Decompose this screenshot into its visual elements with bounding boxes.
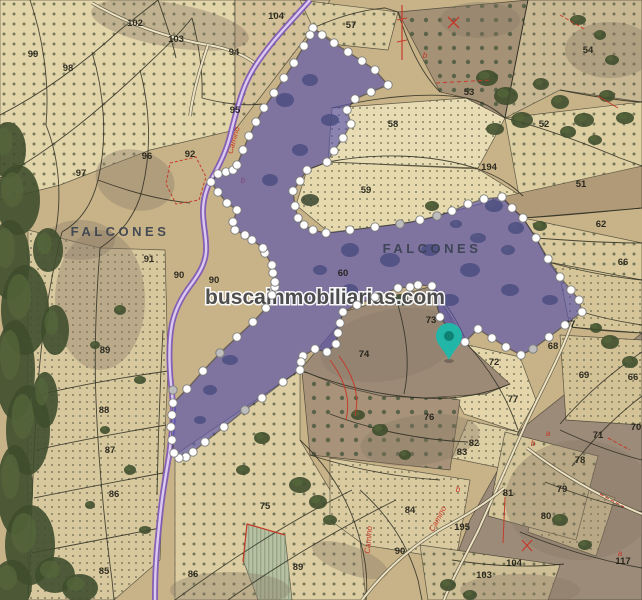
parcel-vertex-dot[interactable] <box>322 229 330 237</box>
tree-scrub-highlight <box>2 172 24 207</box>
parcel-vertex-dot[interactable] <box>339 308 347 316</box>
parcel-vertex-dot[interactable] <box>223 199 231 207</box>
tree-scrub-highlight <box>601 91 609 97</box>
tree-scrub-highlight <box>514 114 525 122</box>
parcel-number: 75 <box>260 501 271 512</box>
parcel-vertex-dot[interactable] <box>428 282 436 290</box>
bare-soil-patch <box>440 2 520 38</box>
tree-scrub-highlight <box>141 527 147 531</box>
parcel-number: 60 <box>338 268 349 279</box>
parcel-vertex-dot[interactable] <box>323 158 331 166</box>
tree-scrub-highlight <box>91 342 96 346</box>
tree-scrub-highlight <box>116 306 122 311</box>
camino-label: b <box>531 439 536 448</box>
parcel-vertex-dot[interactable] <box>508 204 516 212</box>
parcel-vertex-dot[interactable] <box>207 178 215 186</box>
parcel-number: 78 <box>575 455 586 466</box>
tree-scrub-highlight <box>11 513 36 553</box>
parcel-vertex-dot[interactable] <box>371 223 379 231</box>
parcel-number: 66 <box>628 372 639 383</box>
parcel-vertex-dot[interactable] <box>199 367 207 375</box>
place-label-falcones: FALCONES <box>383 241 482 256</box>
tree-scrub-highlight <box>554 515 562 521</box>
parcel-vertex-dot[interactable] <box>291 202 299 210</box>
parcel-vertex-dot[interactable] <box>168 411 176 419</box>
parcel-number: 102 <box>127 18 143 29</box>
parcel-vertex-dot[interactable] <box>367 88 375 96</box>
parcel-vertex-dot[interactable] <box>169 399 177 407</box>
parcel-vertex-dot[interactable] <box>384 81 392 89</box>
parcel-vertex-dot[interactable] <box>323 348 331 356</box>
parcel-number: 86 <box>188 569 199 580</box>
parcel-vertex-dot[interactable] <box>567 286 575 294</box>
parcel-vertex-dot[interactable] <box>260 104 268 112</box>
parcel-number: 62 <box>596 219 607 230</box>
parcel-vertex-dot[interactable] <box>556 273 564 281</box>
parcel-vertex-dot[interactable] <box>343 106 351 114</box>
parcel-vertex-dot[interactable] <box>347 120 355 128</box>
parcel-number: 76 <box>424 412 435 423</box>
parcel-number: 117 <box>615 556 630 567</box>
parcel-vertex-dot[interactable] <box>233 206 241 214</box>
parcel-number: 85 <box>99 566 110 577</box>
parcel-vertex-dot[interactable] <box>353 301 361 309</box>
parcel-number: 73 <box>426 315 437 326</box>
parcel-number: 80 <box>541 511 552 522</box>
field-crop-texture <box>328 98 505 168</box>
tree-scrub-highlight <box>596 31 602 36</box>
parcel-number: 89 <box>100 345 111 356</box>
parcel-vertex-dot[interactable] <box>394 284 402 292</box>
tree-scrub-highlight <box>238 466 245 471</box>
parcel-number: 104 <box>268 11 285 22</box>
parcel-vertex-dot[interactable] <box>300 42 308 50</box>
parcel-vertex-dot[interactable] <box>358 57 366 65</box>
tree-scrub-highlight <box>256 433 264 439</box>
parcel-number: 82 <box>469 438 480 449</box>
parcel-vertex-dot[interactable] <box>330 147 338 155</box>
parcel-vertex-dot[interactable] <box>269 269 277 277</box>
parcel-vertex-dot[interactable] <box>231 226 239 234</box>
parcel-vertex-dot[interactable] <box>339 134 347 142</box>
tree-scrub-highlight <box>618 113 627 119</box>
tree-scrub-highlight <box>442 580 450 586</box>
parcel-number: 99 <box>28 49 39 60</box>
parcel-vertex-dot[interactable] <box>280 74 288 82</box>
parcel-vertex-dot[interactable] <box>436 313 444 321</box>
parcel-number: 52 <box>539 119 550 130</box>
pin-hole <box>444 331 454 341</box>
parcel-vertex-dot[interactable] <box>545 333 553 341</box>
map-canvas[interactable]: CaminoCaminoCaminobbabba 999810210310494… <box>0 0 642 600</box>
tree-scrub-highlight <box>580 541 587 546</box>
parcel-number: 90 <box>395 546 406 557</box>
parcel-number: 95 <box>230 105 241 116</box>
tree-scrub-highlight <box>136 377 142 381</box>
parcel-number: 69 <box>579 370 590 381</box>
parcel-vertex-dot[interactable] <box>351 95 359 103</box>
parcel-vertex-dot[interactable] <box>214 170 222 178</box>
parcel-number: 79 <box>557 484 568 495</box>
tree-scrub-highlight <box>0 330 20 380</box>
parcel-number: 71 <box>593 430 604 441</box>
parcel-vertex-dot[interactable] <box>220 423 228 431</box>
parcel-vertex-dot-inactive[interactable] <box>396 220 404 228</box>
parcel-number: 83 <box>457 447 468 458</box>
parcel-number: 87 <box>105 445 116 456</box>
parcel-vertex-dot[interactable] <box>270 89 278 97</box>
tree-scrub-highlight <box>577 114 587 121</box>
tree-scrub-highlight <box>465 591 472 596</box>
parcel-vertex-dot[interactable] <box>268 291 276 299</box>
tree-scrub-highlight <box>562 127 570 133</box>
parcel-vertex-dot[interactable] <box>578 308 586 316</box>
parcel-vertex-dot[interactable] <box>517 351 525 359</box>
parcel-vertex-dot[interactable] <box>544 255 552 263</box>
parcel-number: 104 <box>506 558 523 569</box>
cadastral-satellite-map[interactable]: CaminoCaminoCaminobbabba 999810210310494… <box>0 0 642 600</box>
tree-scrub-highlight <box>624 357 632 363</box>
parcel-vertex-dot[interactable] <box>318 31 326 39</box>
camino-label: b <box>423 51 428 60</box>
parcel-vertex-dot[interactable] <box>233 161 241 169</box>
parcel-vertex-dot[interactable] <box>168 436 176 444</box>
parcel-number: 194 <box>481 162 498 173</box>
parcel-vertex-dot[interactable] <box>268 261 276 269</box>
parcel-vertex-dot[interactable] <box>561 321 569 329</box>
parcel-vertex-dot[interactable] <box>346 226 354 234</box>
parcel-number: 92 <box>185 149 196 160</box>
parcel-number: 57 <box>346 20 357 31</box>
place-label-falcones: FALCONES <box>71 224 170 239</box>
camino-label: a <box>546 429 551 438</box>
parcel-number: 66 <box>618 257 629 268</box>
tree-scrub-highlight <box>45 310 59 335</box>
parcel-vertex-dot[interactable] <box>414 281 422 289</box>
parcel-vertex-dot[interactable] <box>294 214 302 222</box>
parcel-vertex-dot[interactable] <box>416 216 424 224</box>
parcel-number: 72 <box>489 357 500 368</box>
parcel-number: 68 <box>548 341 559 352</box>
parcel-vertex-dot[interactable] <box>252 118 260 126</box>
parcel-number: 74 <box>359 349 370 360</box>
parcel-vertex-dot[interactable] <box>303 166 311 174</box>
parcel-vertex-dot[interactable] <box>239 146 247 154</box>
tree-scrub-highlight <box>311 496 320 503</box>
parcel-vertex-dot[interactable] <box>464 200 472 208</box>
parcel-number: 90 <box>174 270 185 281</box>
parcel-vertex-dot[interactable] <box>249 318 257 326</box>
parcel-vertex-dot[interactable] <box>330 39 338 47</box>
parcel-number: 88 <box>99 405 110 416</box>
tree-scrub-highlight <box>374 425 382 431</box>
parcel-vertex-dot[interactable] <box>296 177 304 185</box>
parcel-vertex-dot[interactable] <box>519 214 527 222</box>
parcel-vertex-dot-inactive[interactable] <box>169 386 177 394</box>
parcel-vertex-dot[interactable] <box>170 449 178 457</box>
parcel-vertex-dot[interactable] <box>241 231 249 239</box>
tree-scrub-highlight <box>67 577 85 591</box>
tree-scrub-highlight <box>292 479 303 487</box>
parcel-vertex-dot[interactable] <box>259 244 267 252</box>
parcel-vertex-dot-inactive[interactable] <box>529 345 537 353</box>
parcel-vertex-dot[interactable] <box>461 338 469 346</box>
tree-scrub-highlight <box>2 454 20 499</box>
parcel-vertex-dot-inactive[interactable] <box>433 212 441 220</box>
tree-scrub-highlight <box>126 466 132 471</box>
parcel-vertex-dot[interactable] <box>480 195 488 203</box>
parcel-number: 53 <box>464 87 475 98</box>
parcel-vertex-dot[interactable] <box>262 304 270 312</box>
parcel-number: 103 <box>168 34 184 45</box>
parcel-vertex-dot[interactable] <box>502 343 510 351</box>
tree-scrub-highlight <box>572 16 580 21</box>
parcel-vertex-dot[interactable] <box>300 221 308 229</box>
tree-scrub-highlight <box>603 336 612 343</box>
parcel-vertex-dot[interactable] <box>214 188 222 196</box>
tree-scrub-highlight <box>607 56 614 61</box>
parcel-vertex-dot[interactable] <box>575 296 583 304</box>
parcel-number: 84 <box>405 505 416 516</box>
parcel-vertex-dot[interactable] <box>532 234 540 242</box>
tree-scrub-highlight <box>7 274 31 319</box>
camino-label: b <box>456 485 461 494</box>
parcel-vertex-dot[interactable] <box>488 334 496 342</box>
tree-scrub-highlight <box>35 378 48 406</box>
parcel-number: 58 <box>388 119 399 130</box>
parcel-vertex-dot[interactable] <box>344 48 352 56</box>
parcel-vertex-dot-inactive[interactable] <box>216 349 224 357</box>
parcel-vertex-dot[interactable] <box>334 329 342 337</box>
tree-scrub-highlight <box>40 561 60 579</box>
parcel-vertex-dot[interactable] <box>311 345 319 353</box>
parcel-vertex-dot[interactable] <box>297 358 305 366</box>
parcel-vertex-dot[interactable] <box>336 319 344 327</box>
tree-scrub-highlight <box>427 202 434 207</box>
tree-blob <box>301 194 319 206</box>
parcel-number: 51 <box>576 179 587 190</box>
parcel-number: 195 <box>454 522 471 533</box>
parcel-number: 90 <box>209 275 220 286</box>
tree-scrub-highlight <box>590 136 597 141</box>
parcel-vertex-dot[interactable] <box>371 66 379 74</box>
parcel-number: 86 <box>109 489 120 500</box>
tree-scrub-highlight <box>401 451 407 456</box>
parcel-number: 91 <box>144 254 155 265</box>
parcel-vertex-dot[interactable] <box>406 283 414 291</box>
tree-scrub-highlight <box>592 324 598 329</box>
parcel-vertex-dot[interactable] <box>296 366 304 374</box>
parcel-number: 70 <box>631 422 642 433</box>
tree-scrub-highlight <box>497 89 509 98</box>
parcel-number: 59 <box>361 185 372 196</box>
parcel-vertex-dot[interactable] <box>290 59 298 67</box>
parcel-vertex-dot[interactable] <box>474 325 482 333</box>
parcel-vertex-dot[interactable] <box>289 187 297 195</box>
parcel-number: 103 <box>476 570 492 581</box>
tree-scrub-highlight <box>86 502 91 506</box>
parcel-vertex-dot[interactable] <box>183 385 191 393</box>
parcel-vertex-dot[interactable] <box>229 218 237 226</box>
parcel-number: 77 <box>508 394 519 405</box>
parcel-vertex-dot[interactable] <box>271 278 279 286</box>
parcel-vertex-dot[interactable] <box>332 340 340 348</box>
parcel-number: 89 <box>293 562 304 573</box>
parcel-vertex-dot[interactable] <box>498 193 506 201</box>
tree-scrub-highlight <box>488 124 497 130</box>
parcel-number: 54 <box>583 45 594 56</box>
parcel-vertex-dot[interactable] <box>201 438 209 446</box>
parcel-number: 81 <box>503 488 514 499</box>
tree-scrub-highlight <box>479 72 490 80</box>
parcel-vertex-dot[interactable] <box>233 333 241 341</box>
tree-scrub-highlight <box>535 79 543 85</box>
parcel-number: 97 <box>76 168 87 179</box>
parcel-vertex-dot[interactable] <box>448 207 456 215</box>
parcel-vertex-dot[interactable] <box>309 226 317 234</box>
parcel-vertex-dot[interactable] <box>258 394 266 402</box>
parcel-number: 98 <box>63 63 74 74</box>
tree-scrub-highlight <box>535 222 542 227</box>
parcel-number: 96 <box>142 151 153 162</box>
tree-scrub-highlight <box>12 394 34 439</box>
parcel-vertex-dot[interactable] <box>306 31 314 39</box>
parcel-vertex-dot[interactable] <box>371 293 379 301</box>
tree-scrub-highlight <box>553 96 562 103</box>
parcel-vertex-dot-inactive[interactable] <box>241 406 249 414</box>
tree-scrub-highlight <box>37 232 52 254</box>
parcel-number: 94 <box>229 47 240 58</box>
tree-scrub-highlight <box>325 516 332 521</box>
parcel-vertex-dot[interactable] <box>279 378 287 386</box>
parcel-vertex-dot[interactable] <box>245 132 253 140</box>
tree-scrub-highlight <box>101 427 106 431</box>
parcel-vertex-dot[interactable] <box>167 423 175 431</box>
